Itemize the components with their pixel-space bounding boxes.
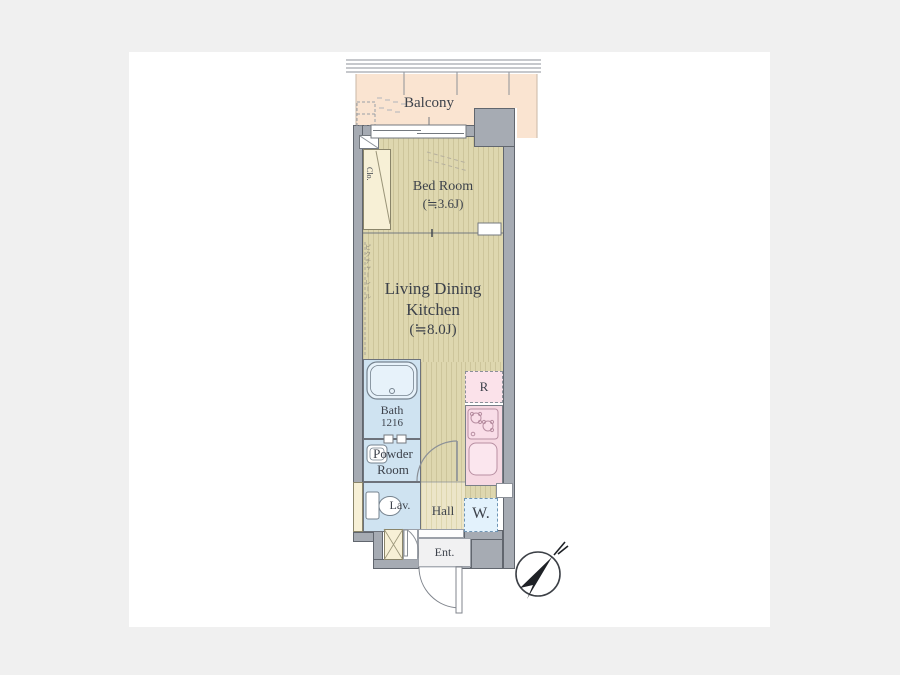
floor-plan-canvas: Balcony Bed Room (≒3.6J) Living Dining K…: [129, 52, 770, 627]
kitchen-counter: [465, 405, 503, 486]
picture-rail-label: ピクチャーレール: [362, 244, 370, 300]
powder-line1: Powder: [365, 446, 421, 462]
floor-plan-page: Balcony Bed Room (≒3.6J) Living Dining K…: [0, 0, 900, 675]
refrigerator-label: R: [465, 379, 503, 395]
lavatory-door-area: [403, 529, 418, 560]
ldk-label: Living Dining Kitchen (≒8.0J): [363, 278, 503, 339]
ldk-size: (≒8.0J): [363, 321, 503, 340]
bath-name: Bath: [363, 404, 421, 417]
bedroom-label: Bed Room (≒3.6J): [383, 178, 503, 212]
washer-label: W.: [464, 504, 498, 524]
bath-label: Bath 1216: [363, 404, 421, 429]
ldk-line2: Kitchen: [363, 299, 503, 320]
balcony-label: Balcony: [369, 94, 489, 113]
powder-line2: Room: [365, 462, 421, 478]
closet-label: Clo.: [364, 167, 374, 181]
bedroom-size: (≒3.6J): [383, 196, 503, 212]
powder-room-label: Powder Room: [365, 446, 421, 477]
ldk-floor-strip-top: [465, 362, 503, 371]
wall-right: [503, 146, 515, 569]
ldk-line1: Living Dining: [363, 278, 503, 299]
wall-step-left: [353, 532, 374, 542]
balcony-area-right: [517, 108, 537, 138]
wall-bottom-left: [373, 559, 419, 569]
entrance-door-icon: [419, 567, 462, 613]
wall-bottom-right-chunk: [471, 538, 503, 569]
pipe-space-strip: [353, 482, 363, 532]
wall-left: [353, 125, 363, 542]
wall-block-top-right: [474, 108, 515, 147]
ldk-floor-mid: [421, 362, 465, 482]
pipe-space-notch: [496, 483, 513, 498]
entrance-label: Ent.: [418, 545, 471, 560]
bedroom-name: Bed Room: [383, 178, 503, 196]
lavatory-label: Lav.: [379, 498, 421, 513]
bath-size: 1216: [363, 417, 421, 429]
entrance-step: [418, 529, 464, 538]
shoe-cabinet: [384, 529, 403, 560]
compass-icon: [516, 542, 568, 599]
hall-label: Hall: [421, 503, 465, 519]
corner-shelf: [359, 135, 379, 149]
